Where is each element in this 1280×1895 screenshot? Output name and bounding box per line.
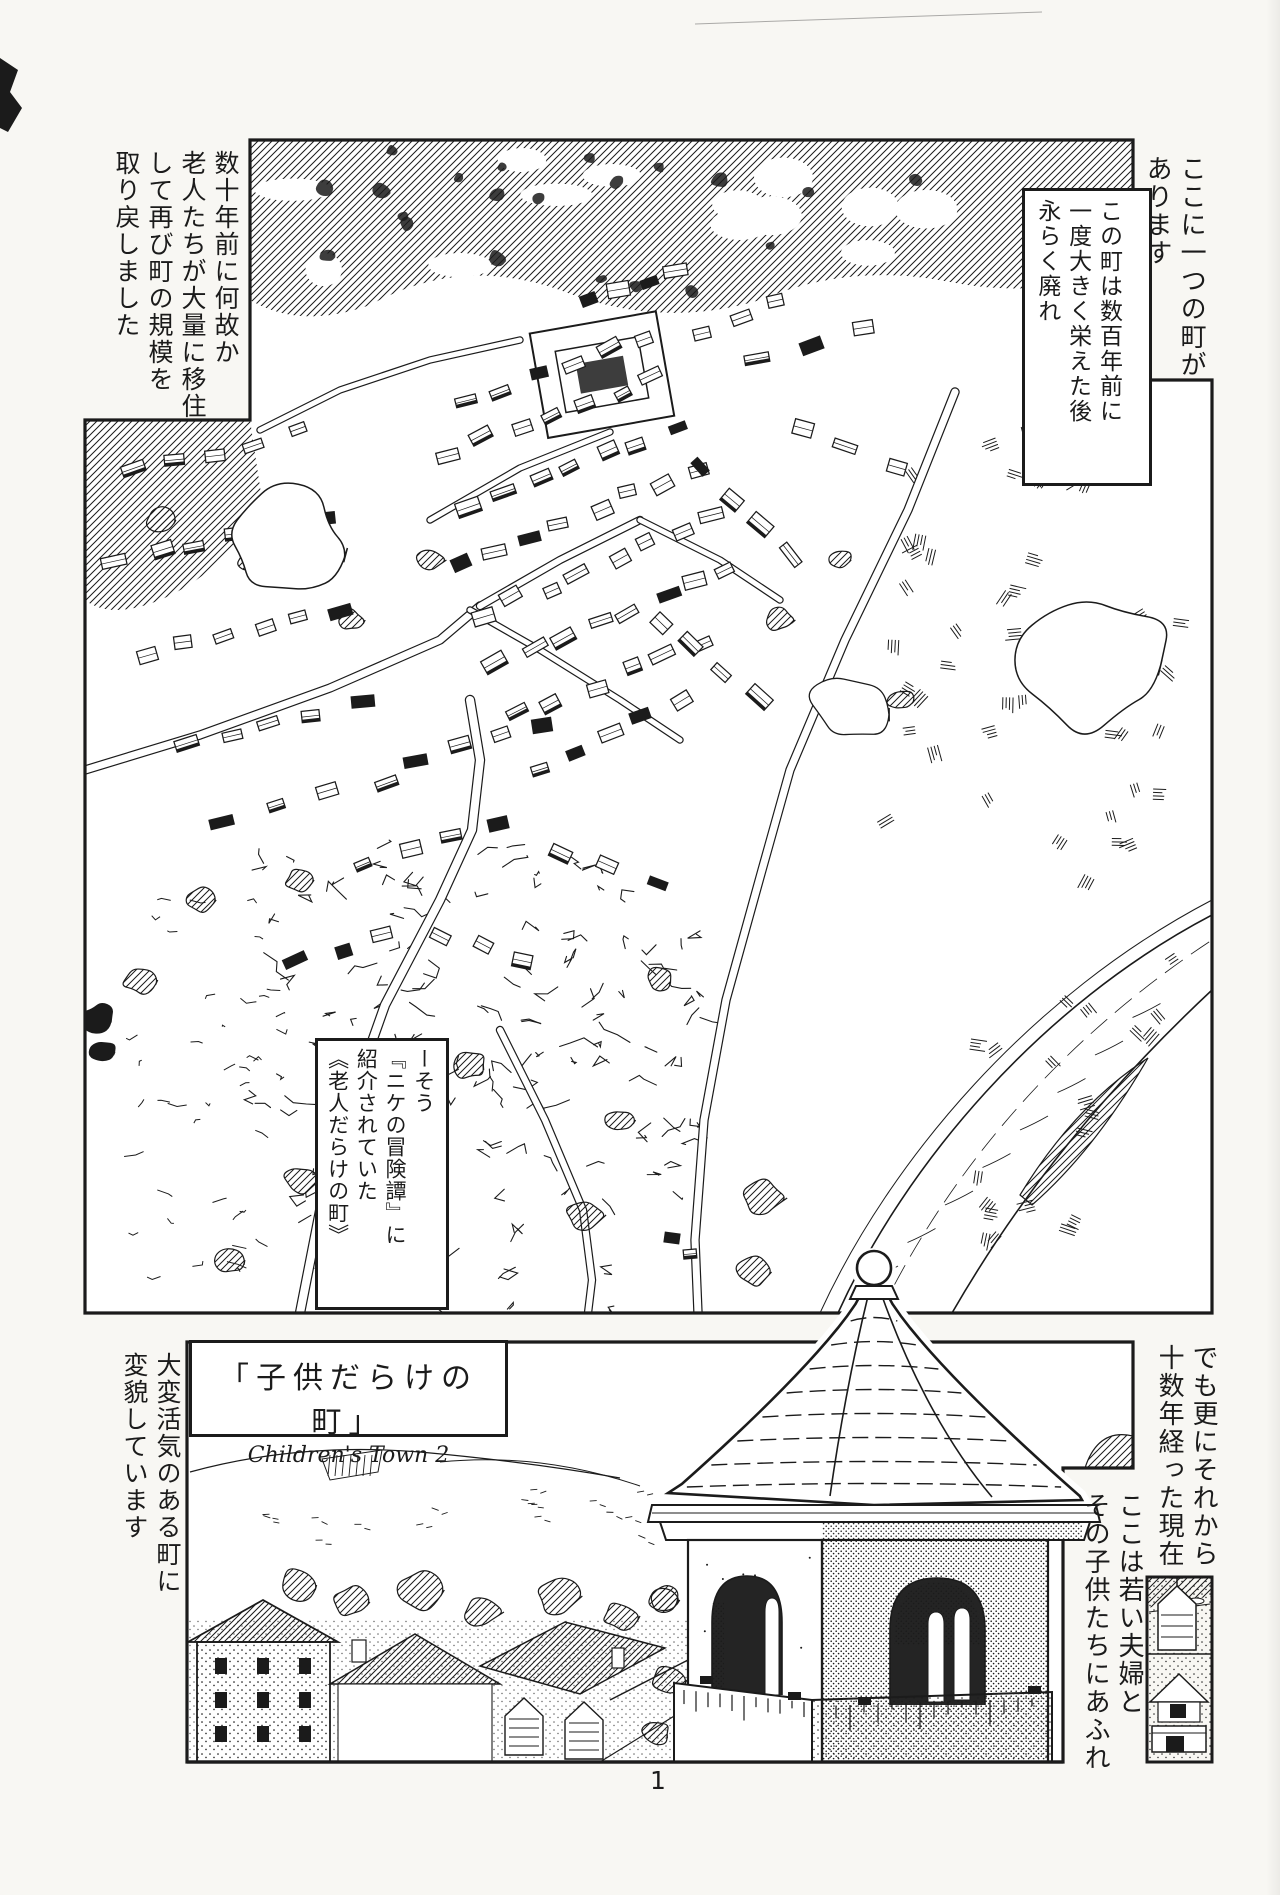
caption-box-town-history: この町は数百年前に 一度大きく栄えた後 永らく廃れ	[1022, 188, 1152, 486]
caption-box-text: ーそう 『ニケの冒険譚』に 紹介されていた 《老人だらけの町》	[323, 1048, 438, 1300]
caption-line: 紹介されていた	[352, 1048, 381, 1300]
caption-line: その子供たちにあふれ	[1078, 1492, 1112, 1772]
caption-line: この町は数百年前に	[1093, 199, 1124, 475]
caption-line: ここに一つの町が	[1174, 155, 1208, 415]
caption-line: ここは若い夫婦と	[1112, 1492, 1146, 1772]
episode-title-en: Children's Town 2	[192, 1443, 505, 1468]
episode-title-box: 「子供だらけの町」 Children's Town 2	[189, 1340, 508, 1437]
manga-page: 数十年前に何故か 老人たちが大量に移住 して再び町の規模を 取り戻しました ここ…	[0, 0, 1280, 1895]
caption-bottom-left: 大変活気のある町に 変貌しています	[118, 1352, 184, 1682]
caption-bottom-right-upper: でも更にそれから 十数年経った現在	[1152, 1344, 1220, 1584]
caption-box-text: この町は数百年前に 一度大きく栄えた後 永らく廃れ	[1031, 199, 1123, 475]
page-number: 1	[650, 1766, 666, 1795]
caption-line: 老人たちが大量に移住	[176, 150, 209, 460]
caption-line: 変貌しています	[118, 1352, 151, 1682]
episode-title-jp: 「子供だらけの町」	[192, 1353, 505, 1441]
caption-line: 取り戻しました	[110, 150, 143, 460]
caption-line: でも更にそれから	[1186, 1344, 1220, 1584]
caption-box-nike-tale: ーそう 『ニケの冒険譚』に 紹介されていた 《老人だらけの町》	[315, 1038, 449, 1310]
caption-line: 数十年前に何故か	[209, 150, 242, 460]
caption-line: ーそう	[409, 1048, 438, 1300]
caption-line: 一度大きく栄えた後	[1062, 199, 1093, 475]
caption-line: 十数年経った現在	[1152, 1344, 1186, 1584]
caption-top-left: 数十年前に何故か 老人たちが大量に移住 して再び町の規模を 取り戻しました	[110, 150, 242, 460]
caption-line: 大変活気のある町に	[151, 1352, 184, 1682]
caption-line: 永らく廃れ	[1031, 199, 1062, 475]
caption-line: して再び町の規模を	[143, 150, 176, 460]
caption-line: 『ニケの冒険譚』に	[380, 1048, 409, 1300]
caption-bottom-right-lower: ここは若い夫婦と その子供たちにあふれ	[1078, 1492, 1146, 1772]
caption-line: 《老人だらけの町》	[323, 1048, 352, 1300]
